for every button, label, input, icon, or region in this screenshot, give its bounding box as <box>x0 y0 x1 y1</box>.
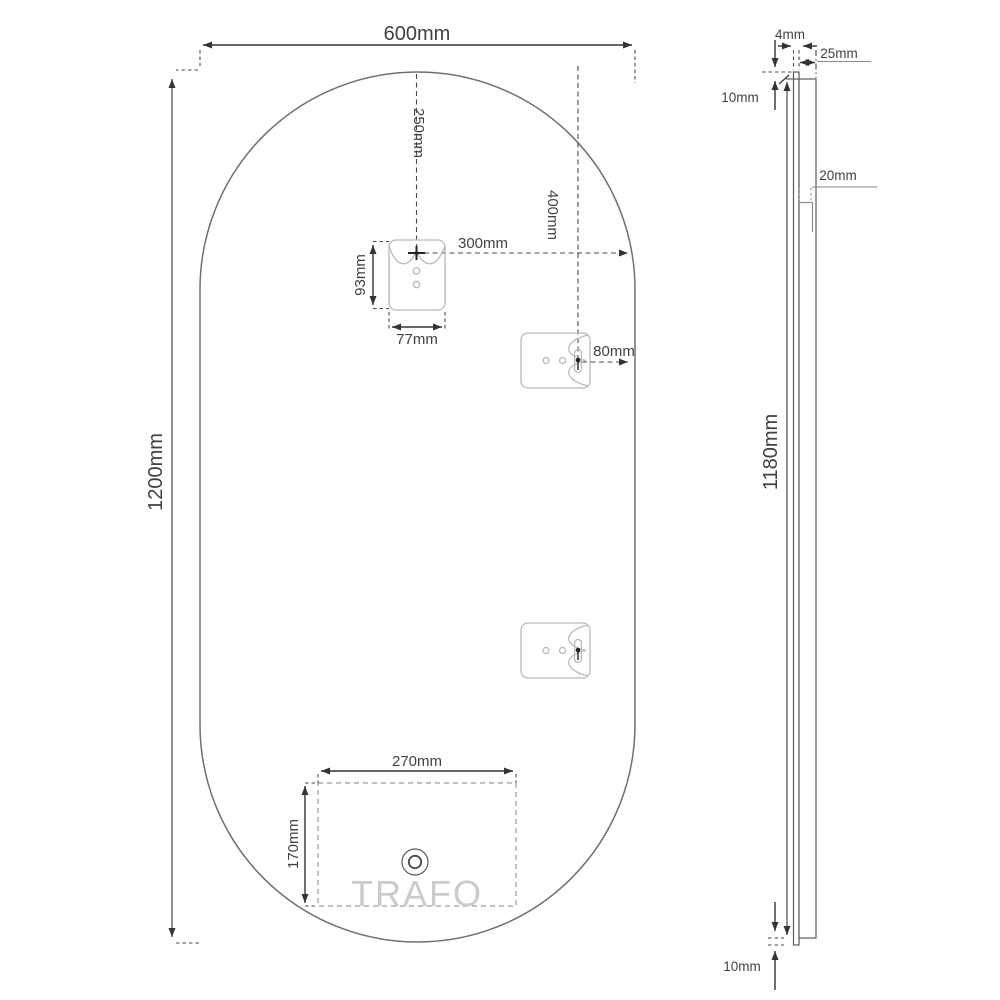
dim-300-label: 300mm <box>458 235 508 252</box>
screw-hole <box>560 648 566 654</box>
dim-93-label: 93mm <box>352 254 369 296</box>
dim-1180-label: 1180mm <box>760 414 782 490</box>
dim-top-offset-250: 250mm <box>410 74 427 256</box>
dim-1200-label: 1200mm <box>145 433 167 511</box>
side-mounting-bracket-upper <box>521 333 590 388</box>
glass-profile <box>794 72 800 945</box>
dim-10-bottom-label: 10mm <box>723 959 761 974</box>
technical-drawing-mirror: 600mm 1200mm 250mm 400mm 300mm 80mm <box>0 0 1000 1000</box>
dim-80-label: 80mm <box>593 343 635 360</box>
side-view: 4mm 25mm 10mm 20mm <box>721 27 877 990</box>
front-view: 600mm 1200mm 250mm 400mm 300mm 80mm <box>145 23 635 943</box>
dim-600-label: 600mm <box>384 23 451 45</box>
dim-bottom-inset-10: 10mm <box>723 902 784 990</box>
screw-hole <box>543 358 549 364</box>
screw-hole <box>543 648 549 654</box>
dim-4-label: 4mm <box>775 27 805 42</box>
dim-170-label: 170mm <box>285 819 302 869</box>
dim-frame-height-1180: 1180mm <box>760 82 787 935</box>
dim-right-offset-300: 300mm <box>424 235 628 253</box>
dim-frame-depth-25: 25mm <box>800 46 871 78</box>
cable-gland-outer <box>402 849 428 875</box>
dim-20-label: 20mm <box>819 168 857 183</box>
screw-hole <box>413 281 419 287</box>
drawing-svg: 600mm 1200mm 250mm 400mm 300mm 80mm <box>0 0 1000 1000</box>
trafo-zone: TRAFO <box>318 783 516 914</box>
dim-77-label: 77mm <box>396 331 438 348</box>
dim-25-label: 25mm <box>820 46 858 61</box>
dim-bracket-width-77: 77mm <box>389 312 445 348</box>
screw-hole <box>413 268 419 274</box>
dim-width-600: 600mm <box>176 23 635 83</box>
dim-height-1200: 1200mm <box>145 79 202 943</box>
dim-400-label: 400mm <box>544 190 561 240</box>
frame-profile <box>799 79 816 938</box>
top-mounting-bracket <box>389 240 445 310</box>
dim-bracket-height-93: 93mm <box>352 242 389 309</box>
screw-hole <box>560 358 566 364</box>
dim-250-label: 250mm <box>410 108 427 158</box>
mirror-outline <box>200 72 635 942</box>
dim-270-label: 270mm <box>392 753 442 770</box>
trafo-watermark: TRAFO <box>351 873 483 914</box>
dim-10-top-label: 10mm <box>721 90 759 105</box>
dim-trafo-height-170: 170mm <box>285 783 318 906</box>
side-mounting-bracket-lower <box>521 623 590 678</box>
hang-point-dot <box>415 251 419 255</box>
dim-trafo-width-270: 270mm <box>318 753 516 783</box>
dim-side-offset-400: 400mm <box>544 66 578 360</box>
dim-glass-thickness-4: 4mm <box>775 27 817 70</box>
